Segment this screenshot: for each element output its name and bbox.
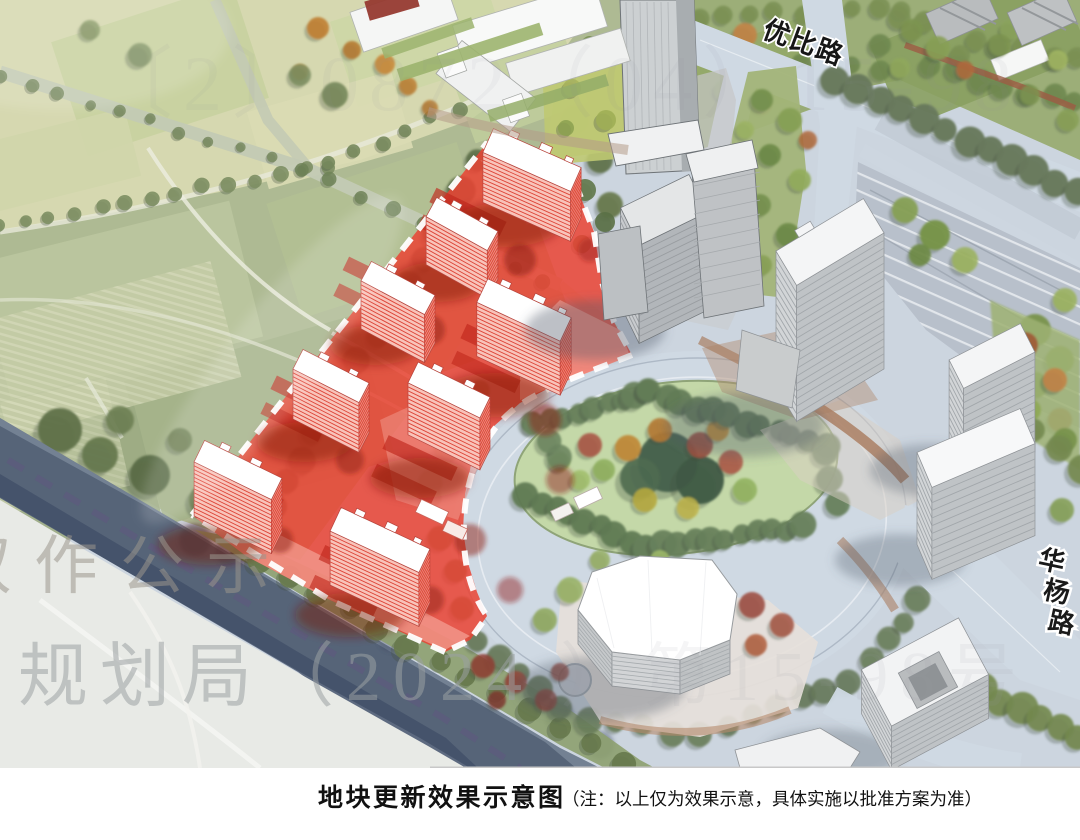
svg-text:（注：以上仅为效果示意，具体实施以批准方案为准）: （注：以上仅为效果示意，具体实施以批准方案为准） <box>562 789 982 809</box>
svg-text:双作公示: 双作公示 <box>0 531 292 602</box>
svg-text:地块更新效果示意图: 地块更新效果示意图 <box>318 783 566 812</box>
svg-text:〔2〕0872（04）15-98: 〔2〕0872（04）15-98 <box>95 40 1022 127</box>
svg-text:中规划局（2024: 中规划局（2024 <box>0 639 534 716</box>
svg-text:）第15-98号: ）第15-98号 <box>560 639 1029 716</box>
